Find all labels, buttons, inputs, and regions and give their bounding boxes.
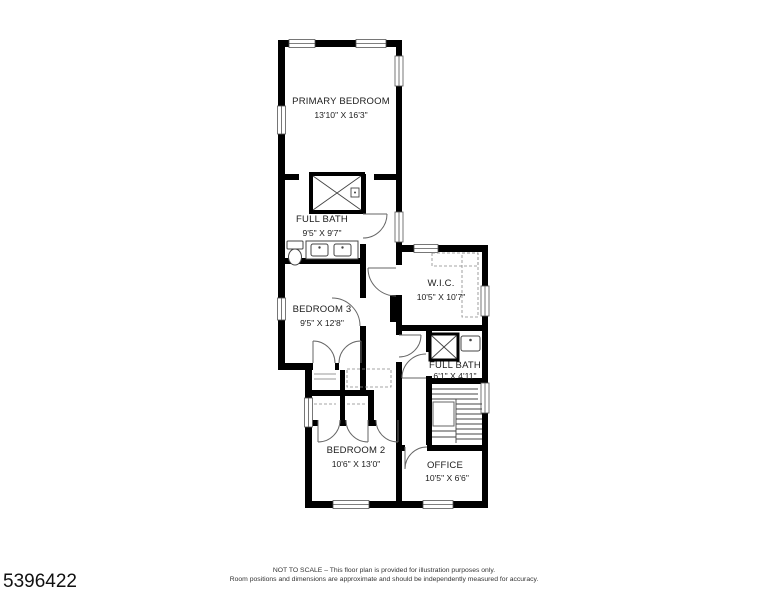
room-label-primary-bedroom: PRIMARY BEDROOM [292, 96, 390, 107]
room-dims-full-bath-2: 6'1" X 4'11" [433, 371, 476, 381]
room-label-wic: W.I.C. [427, 278, 454, 289]
room-dims-bedroom-2: 10'6" X 13'0" [332, 459, 381, 469]
disclaimer-line-1: NOT TO SCALE – This floor plan is provid… [273, 567, 495, 574]
plan-id: 5396422 [3, 571, 77, 592]
double-vanity-fixture [306, 241, 358, 259]
room-dims-bedroom-3: 9'5" X 12'8" [300, 318, 344, 328]
shower-primary [311, 174, 363, 212]
room-label-full-bath-2: FULL BATH [429, 360, 481, 371]
disclaimer-line-2: Room positions and dimensions are approx… [230, 576, 539, 583]
room-dims-full-bath-1: 9'5" X 9'7" [302, 228, 341, 238]
room-labels: PRIMARY BEDROOM 13'10" X 16'3" FULL BATH… [292, 96, 481, 483]
stairs [432, 389, 482, 443]
shower-bath2 [430, 334, 458, 360]
floor-plan: PRIMARY BEDROOM 13'10" X 16'3" FULL BATH… [0, 0, 768, 594]
room-label-full-bath-1: FULL BATH [296, 214, 348, 225]
room-dims-office: 10'5" X 6'6" [425, 473, 469, 483]
room-dims-wic: 10'5" X 10'7" [417, 292, 466, 302]
room-label-bedroom-2: BEDROOM 2 [327, 445, 386, 456]
room-label-bedroom-3: BEDROOM 3 [293, 304, 352, 315]
closet-shelving-hall [314, 369, 391, 404]
room-label-office: OFFICE [427, 460, 463, 471]
room-dims-primary-bedroom: 13'10" X 16'3" [314, 110, 367, 120]
walls [278, 40, 488, 508]
toilet-fixture [287, 241, 303, 265]
sink-fixture [461, 336, 480, 351]
